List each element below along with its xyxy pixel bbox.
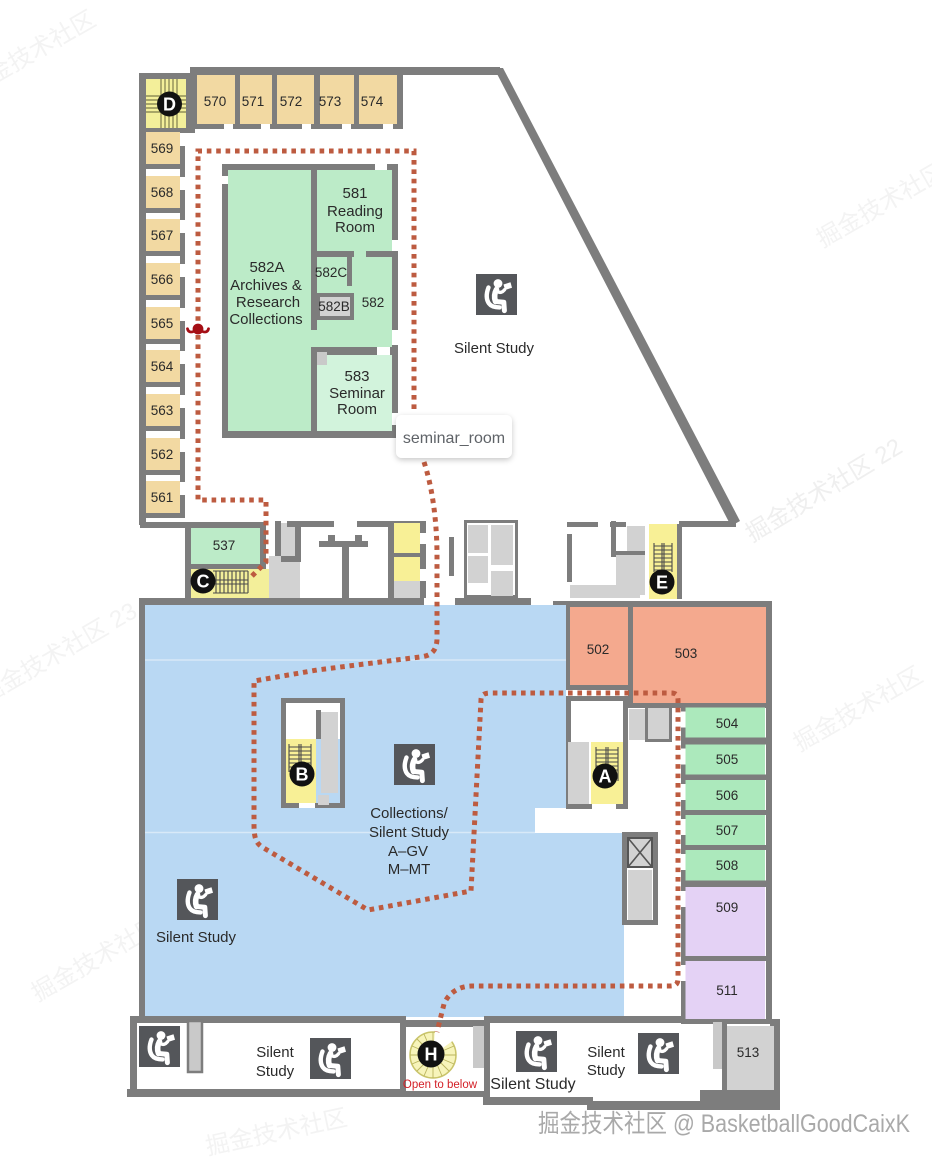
svg-text:D: D (163, 95, 176, 115)
svg-text:M–MT: M–MT (388, 861, 431, 878)
svg-text:Silent Study: Silent Study (490, 1076, 575, 1093)
svg-text:Silent: Silent (256, 1044, 294, 1061)
svg-text:568: 568 (151, 185, 174, 200)
svg-text:505: 505 (716, 752, 739, 767)
svg-text:565: 565 (151, 316, 174, 331)
svg-text:563: 563 (151, 403, 174, 418)
svg-text:B: B (296, 765, 309, 785)
svg-text:582A: 582A (249, 259, 284, 276)
svg-text:Silent Study: Silent Study (369, 824, 450, 841)
svg-text:506: 506 (716, 788, 739, 803)
svg-text:507: 507 (716, 823, 739, 838)
svg-text:569: 569 (151, 141, 174, 156)
svg-text:C: C (197, 572, 210, 592)
svg-text:Collections/: Collections/ (370, 805, 448, 822)
svg-text:Silent Study: Silent Study (454, 340, 535, 357)
svg-text:seminar_room: seminar_room (403, 430, 505, 447)
svg-text:513: 513 (737, 1045, 760, 1060)
svg-text:570: 570 (204, 94, 227, 109)
svg-text:Open to below: Open to below (403, 1079, 478, 1091)
svg-text:Reading: Reading (327, 203, 383, 220)
svg-text:Collections: Collections (229, 311, 302, 328)
svg-text:582B: 582B (318, 299, 350, 314)
svg-text:572: 572 (280, 94, 303, 109)
svg-text:564: 564 (151, 359, 174, 374)
svg-text:581: 581 (342, 185, 367, 202)
svg-text:Archives &: Archives & (230, 277, 302, 294)
svg-text:Study: Study (256, 1063, 295, 1080)
svg-text:A–GV: A–GV (388, 843, 428, 860)
svg-text:583: 583 (344, 368, 369, 385)
svg-text:掘金技术社区 @ BasketballGoodCaixK: 掘金技术社区 @ BasketballGoodCaixK (538, 1110, 910, 1138)
svg-text:573: 573 (319, 94, 342, 109)
svg-text:582C: 582C (315, 265, 348, 280)
svg-text:H: H (425, 1045, 438, 1065)
svg-text:Seminar: Seminar (329, 385, 385, 402)
svg-text:Silent: Silent (587, 1044, 625, 1061)
svg-text:562: 562 (151, 447, 174, 462)
svg-text:561: 561 (151, 490, 174, 505)
svg-text:Research: Research (236, 294, 300, 311)
svg-text:537: 537 (213, 538, 236, 553)
svg-text:Room: Room (335, 219, 375, 236)
svg-text:504: 504 (716, 716, 739, 731)
svg-text:566: 566 (151, 272, 174, 287)
svg-text:E: E (656, 573, 668, 593)
svg-text:Study: Study (587, 1062, 626, 1079)
svg-text:582: 582 (362, 295, 385, 310)
svg-text:503: 503 (675, 646, 698, 661)
svg-text:Room: Room (337, 401, 377, 418)
svg-text:508: 508 (716, 858, 739, 873)
svg-text:502: 502 (587, 642, 610, 657)
svg-text:574: 574 (361, 94, 384, 109)
svg-text:571: 571 (242, 94, 265, 109)
svg-text:509: 509 (716, 900, 739, 915)
svg-text:A: A (599, 767, 612, 787)
svg-text:567: 567 (151, 228, 174, 243)
svg-text:511: 511 (716, 983, 738, 998)
svg-text:Silent Study: Silent Study (156, 929, 237, 946)
